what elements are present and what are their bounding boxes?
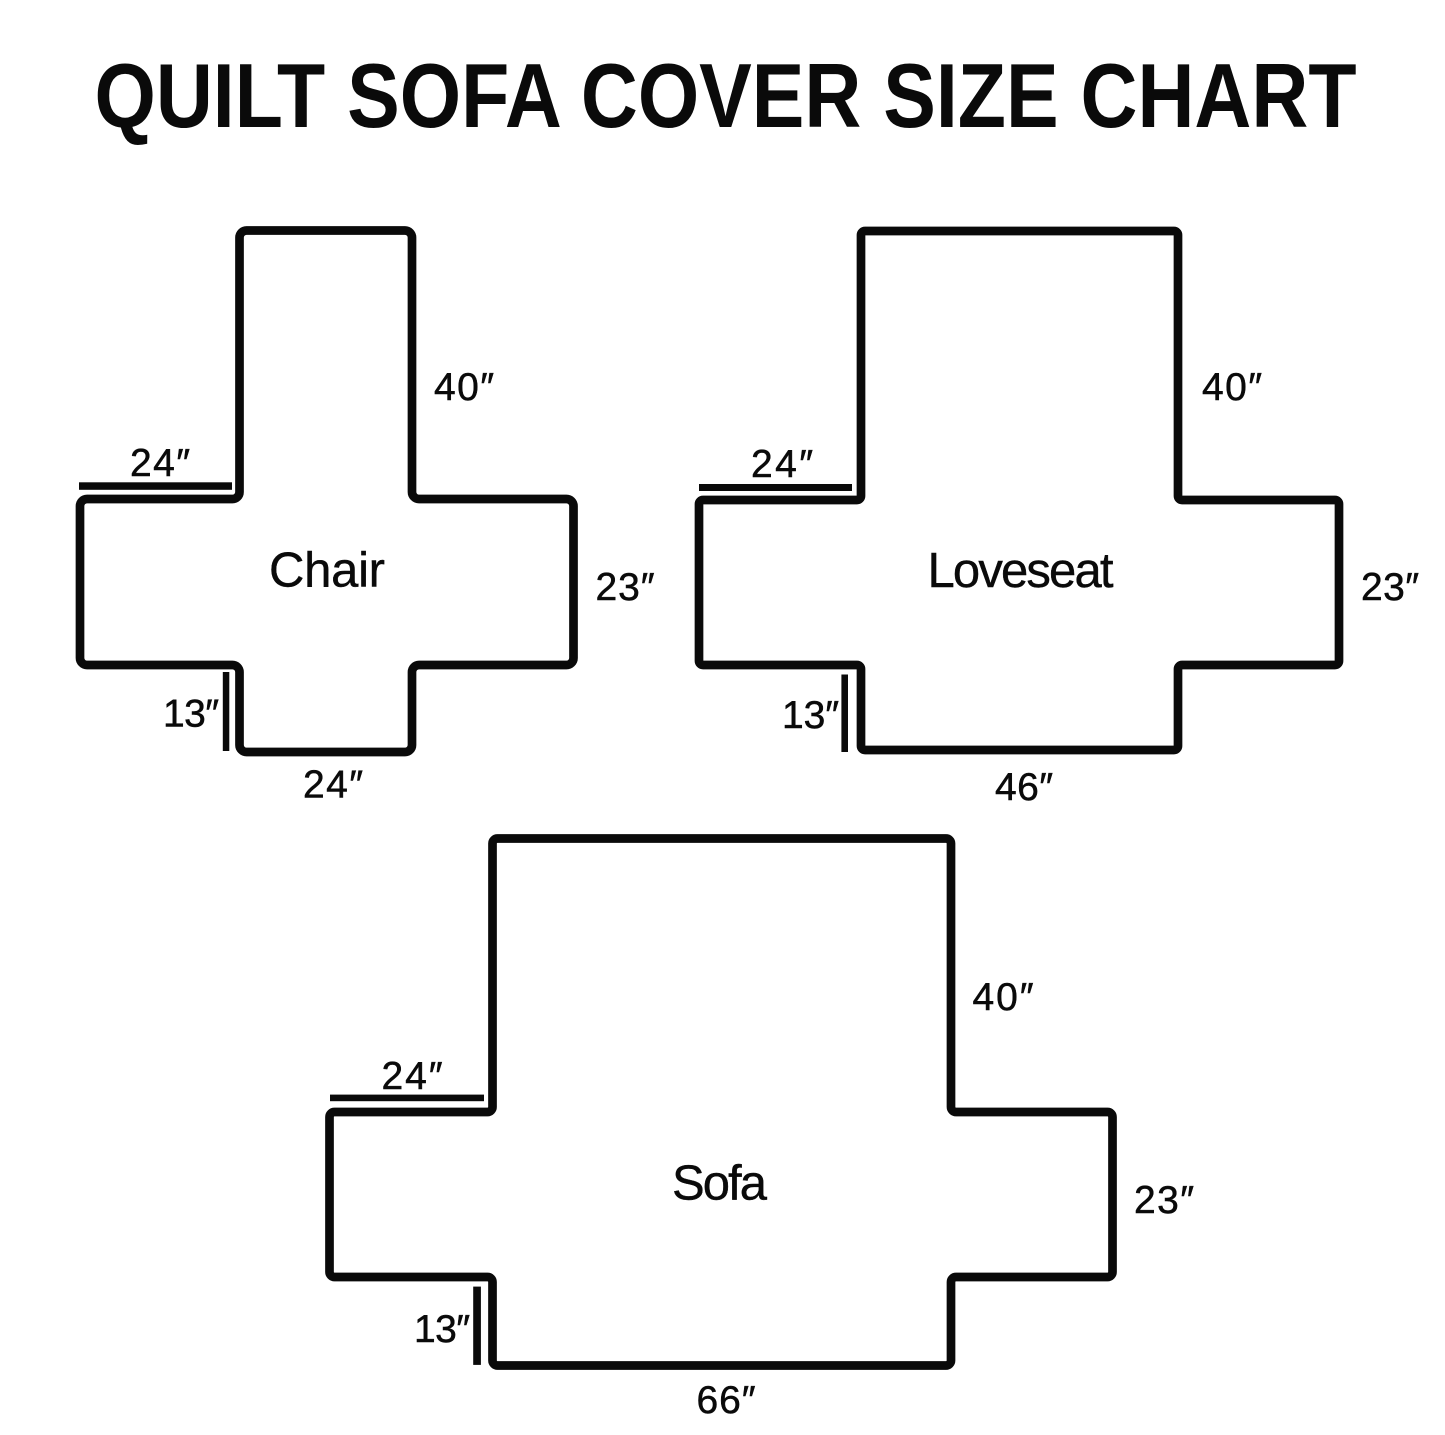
svg-text:Sofa: Sofa bbox=[672, 1157, 768, 1211]
svg-text:23″: 23″ bbox=[1361, 566, 1419, 609]
svg-text:13″: 13″ bbox=[163, 693, 219, 736]
svg-text:24″: 24″ bbox=[303, 764, 363, 807]
svg-text:40″: 40″ bbox=[434, 366, 494, 409]
svg-text:46″: 46″ bbox=[995, 766, 1053, 809]
svg-text:QUILT SOFA COVER SIZE CHART: QUILT SOFA COVER SIZE CHART bbox=[95, 46, 1357, 147]
svg-text:Chair: Chair bbox=[269, 544, 385, 598]
svg-text:24″: 24″ bbox=[382, 1055, 443, 1098]
svg-text:23″: 23″ bbox=[1134, 1179, 1194, 1222]
svg-text:40″: 40″ bbox=[1202, 366, 1262, 409]
svg-text:24″: 24″ bbox=[130, 442, 190, 485]
svg-text:66″: 66″ bbox=[697, 1379, 756, 1422]
svg-text:23″: 23″ bbox=[596, 566, 655, 609]
svg-text:13″: 13″ bbox=[414, 1308, 470, 1351]
svg-text:24″: 24″ bbox=[751, 443, 813, 486]
svg-text:40″: 40″ bbox=[973, 976, 1034, 1019]
svg-text:13″: 13″ bbox=[782, 694, 839, 737]
svg-text:Loveseat: Loveseat bbox=[928, 544, 1114, 598]
